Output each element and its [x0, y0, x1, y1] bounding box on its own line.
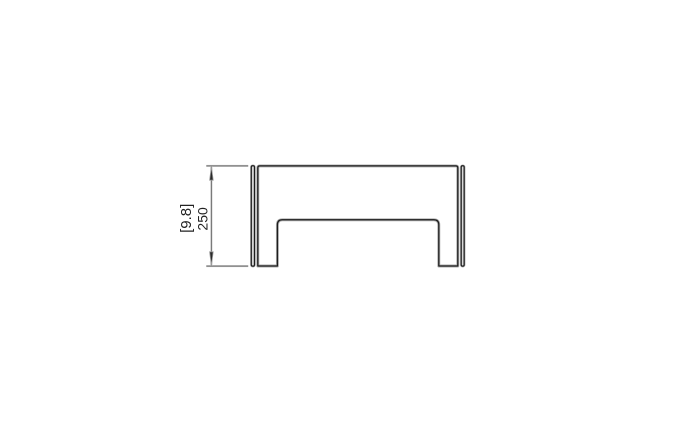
svg-text:250: 250 — [195, 207, 211, 231]
svg-text:[9.8]: [9.8] — [178, 204, 195, 233]
